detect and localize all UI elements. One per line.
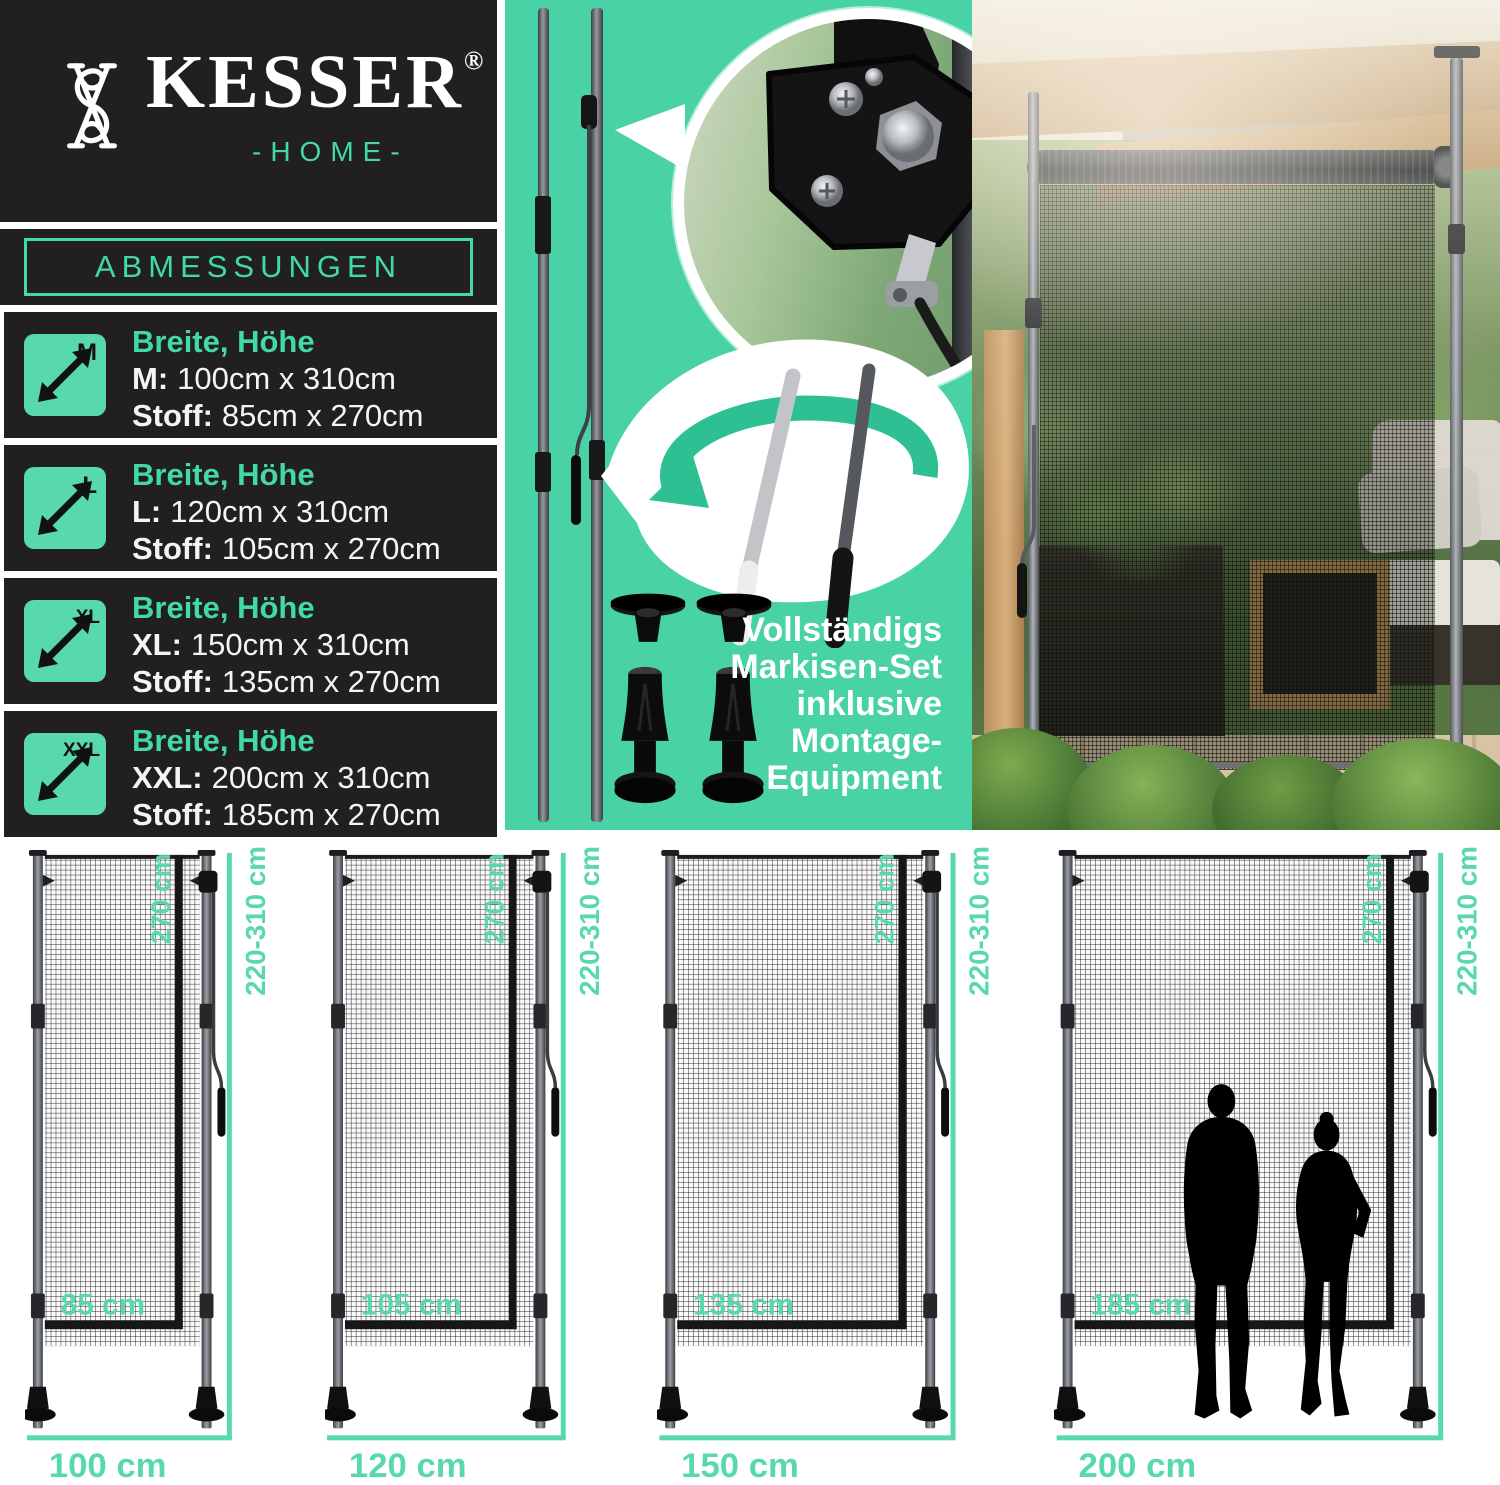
fabric-height-label: 270 cm [869,853,899,944]
height-measure-line [1438,853,1443,1438]
caption-line: inklusive [730,686,942,723]
pole-clamp [535,452,551,492]
dimensions-header-block: ABMESSUNGEN [0,229,497,305]
fabric-width-label: 85 cm [61,1288,145,1321]
width-measure-line [27,1435,232,1440]
height-measure-line [951,853,956,1438]
width-label: 100 cm [49,1447,167,1480]
crank-rod [547,893,555,1087]
crank-handle [217,1087,225,1137]
caption-line: Vollständigs [730,612,942,649]
dimension-diagrams: 270 cm220-310 cm85 cm100 cm 270 cm220-31… [0,845,1500,1480]
floor-foot-icon [605,662,685,810]
size-row-l: L Breite, Höhe L:120cm x 310cm Stoff:105… [4,445,497,571]
size-row-xl: XL Breite, Höhe XL:150cm x 310cm Stoff:1… [4,578,497,704]
size-badge: XL [76,607,100,629]
top-section: KESSER® -HOME- ABMESSUNGEN M [0,0,1500,838]
row-fabric: Stoff:105cm x 270cm [132,530,441,567]
product-infographic: KESSER® -HOME- ABMESSUNGEN M [0,0,1500,1480]
crank-gearbox [922,871,941,893]
width-measure-line [659,1435,955,1440]
height-measure-line [561,853,566,1438]
row-title: Breite, Höhe [132,456,441,493]
row-dimensions: XL:150cm x 310cm [132,626,441,663]
size-badge: L [82,472,97,500]
brand-name: KESSER® [146,44,483,120]
sunlight-haze [972,0,1500,830]
dimension-diagram-svg: 270 cm220-310 cm105 cm120 cm [325,845,609,1480]
crank-handle [1429,1087,1437,1137]
row-title: Breite, Höhe [132,323,423,360]
height-measure-line [227,853,232,1438]
diagram-size-l: 270 cm220-310 cm105 cm120 cm [325,845,609,1485]
awning-pole-illustration [538,8,549,822]
fabric-width-label: 185 cm [1090,1288,1191,1321]
row-fabric: Stoff:135cm x 270cm [132,663,441,700]
fabric-width-label: 105 cm [361,1288,462,1321]
diagram-size-xl: 270 cm220-310 cm135 cm150 cm [657,845,999,1485]
dimension-diagram-svg: 270 cm220-310 cm135 cm150 cm [657,845,999,1480]
row-fabric: Stoff:185cm x 270cm [132,796,441,833]
dimensions-panel: KESSER® -HOME- ABMESSUNGEN M [0,0,497,838]
size-badge: M [77,339,97,367]
brand-home-label: -HOME- [252,136,409,168]
equipment-panel: Vollständigs Markisen-Set inklusive Mont… [505,0,972,830]
product-photo [972,0,1500,830]
width-label: 120 cm [349,1447,467,1480]
crank-handle [551,1087,559,1137]
size-xl-icon: XL [24,600,106,682]
diagram-size-xxl: 270 cm220-310 cm185 cm200 cm [1054,845,1487,1485]
brand-logo-block: KESSER® -HOME- [0,0,497,222]
registered-mark: ® [464,46,483,75]
width-label: 150 cm [681,1447,799,1480]
fabric-height-label: 270 cm [146,853,176,944]
dimensions-header-box: ABMESSUNGEN [24,238,473,296]
size-row-m: M Breite, Höhe M:100cm x 310cm Stoff:85c… [4,312,497,438]
crank-rod [1425,893,1433,1087]
caption-line: Equipment [730,760,942,797]
width-measure-line [327,1435,566,1440]
crank-rod [937,893,945,1087]
crank-gearbox [1410,871,1429,893]
size-xxl-icon: XXL [24,733,106,815]
extension-height-label: 220-310 cm [1451,846,1482,996]
fabric-width-label: 135 cm [693,1288,794,1321]
ceiling-pad-icon [607,592,689,648]
size-l-icon: L [24,467,106,549]
size-badge: XXL [63,740,100,762]
caption-line: Markisen-Set [730,649,942,686]
crank-gearbox [532,871,551,893]
crank-gearbox [199,871,218,893]
row-title: Breite, Höhe [132,589,441,626]
extension-height-label: 220-310 cm [574,846,605,996]
diagram-size-m: 270 cm220-310 cm85 cm100 cm [25,845,275,1485]
row-dimensions: XXL:200cm x 310cm [132,759,441,796]
size-row-xxl: XXL Breite, Höhe XXL:200cm x 310cm Stoff… [4,711,497,837]
extension-height-label: 220-310 cm [240,846,271,996]
row-fabric: Stoff:85cm x 270cm [132,397,423,434]
caption-line: Montage- [730,723,942,760]
width-measure-line [1057,1435,1443,1440]
crank-rod [214,893,222,1087]
row-dimensions: L:120cm x 310cm [132,493,441,530]
dimension-diagram-svg: 270 cm220-310 cm185 cm200 cm [1054,845,1487,1480]
dimensions-header-label: ABMESSUNGEN [95,249,402,285]
size-m-icon: M [24,334,106,416]
pole-clamp [535,196,551,254]
extension-height-label: 220-310 cm [964,846,995,996]
kesser-monogram-icon [52,44,132,166]
row-title: Breite, Höhe [132,722,441,759]
dimension-diagram-svg: 270 cm220-310 cm85 cm100 cm [25,845,275,1480]
callout-tail [615,104,685,170]
fabric-height-label: 270 cm [480,853,510,944]
fabric-height-label: 270 cm [1357,853,1387,944]
width-label: 200 cm [1079,1447,1197,1480]
crank-handle [941,1087,949,1137]
row-dimensions: M:100cm x 310cm [132,360,423,397]
set-caption: Vollständigs Markisen-Set inklusive Mont… [730,612,942,797]
